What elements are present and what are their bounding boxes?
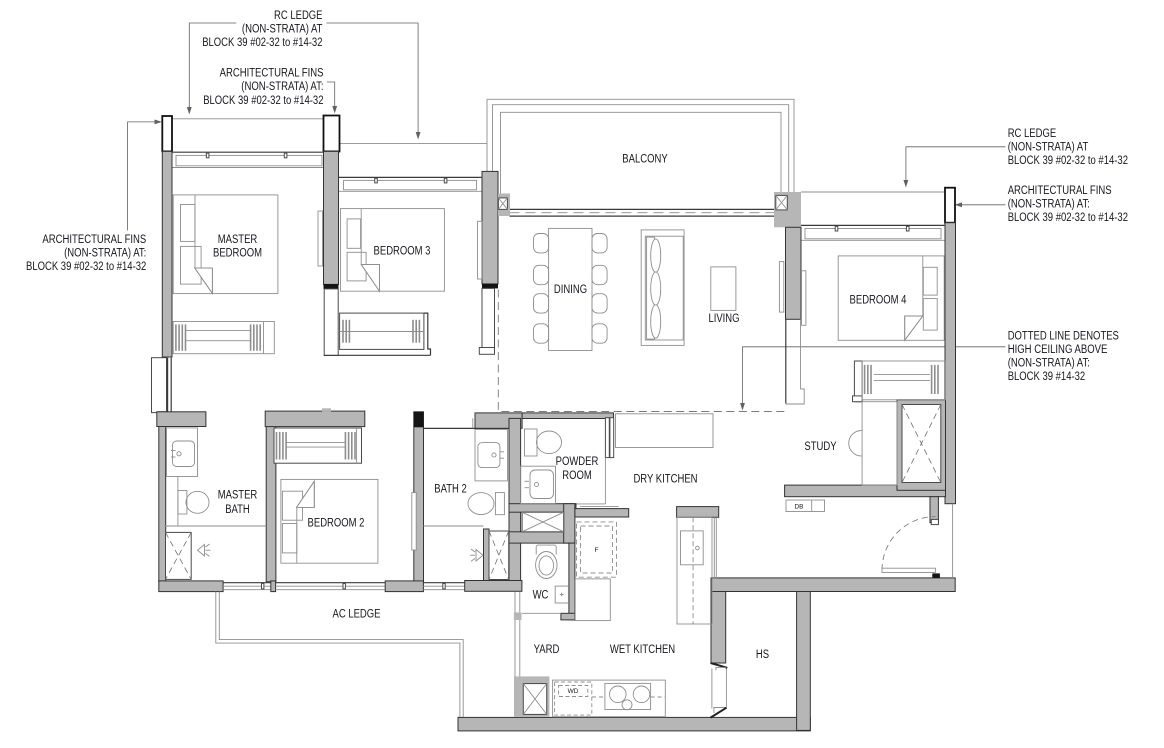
svg-text:BALCONY: BALCONY [622,153,668,165]
svg-text:DINING: DINING [554,284,587,296]
svg-text:ARCHITECTURAL FINS: ARCHITECTURAL FINS [42,234,146,246]
svg-text:WD: WD [568,688,579,695]
svg-text:DB: DB [794,504,803,511]
svg-text:(NON-STRATA) AT: (NON-STRATA) AT [1008,141,1089,153]
svg-text:WET KITCHEN: WET KITCHEN [610,644,675,656]
svg-text:STUDY: STUDY [804,441,836,453]
svg-text:F: F [595,547,599,554]
svg-text:BLOCK 39 #02-32 to #14-32: BLOCK 39 #02-32 to #14-32 [26,261,146,273]
svg-text:ROOM: ROOM [562,470,592,482]
svg-text:LIVING: LIVING [708,313,739,325]
svg-text:POWDER: POWDER [556,456,599,468]
svg-text:BLOCK 39 #02-32 to #14-32: BLOCK 39 #02-32 to #14-32 [1008,212,1128,224]
svg-text:BATH 2: BATH 2 [434,483,467,495]
svg-text:BEDROOM: BEDROOM [213,247,262,259]
svg-text:(NON-STRATA) AT:: (NON-STRATA) AT: [1008,358,1090,370]
svg-text:HIGH CEILING ABOVE: HIGH CEILING ABOVE [1008,344,1108,356]
svg-text:YARD: YARD [534,644,560,656]
svg-text:AC LEDGE: AC LEDGE [333,608,381,620]
svg-text:(NON-STRATA) AT:: (NON-STRATA) AT: [241,81,323,93]
svg-text:(NON-STRATA) AT:: (NON-STRATA) AT: [64,247,146,259]
svg-text:RC LEDGE: RC LEDGE [1008,128,1057,140]
svg-text:(NON-STRATA) AT:: (NON-STRATA) AT: [1008,199,1090,211]
svg-text:MASTER: MASTER [218,234,258,246]
svg-text:BEDROOM 4: BEDROOM 4 [850,294,907,306]
svg-text:BEDROOM 3: BEDROOM 3 [374,245,431,257]
svg-text:BLOCK 39 #02-32 to #14-32: BLOCK 39 #02-32 to #14-32 [203,95,323,107]
svg-text:BLOCK 39 #02-32 to #14-32: BLOCK 39 #02-32 to #14-32 [202,37,322,49]
svg-text:BEDROOM 2: BEDROOM 2 [308,517,365,529]
svg-text:DOTTED LINE DENOTES: DOTTED LINE DENOTES [1008,330,1119,342]
svg-text:RC LEDGE: RC LEDGE [274,10,323,22]
svg-text:BLOCK 39 #14-32: BLOCK 39 #14-32 [1008,371,1085,383]
svg-text:ARCHITECTURAL FINS: ARCHITECTURAL FINS [220,68,324,80]
svg-text:WC: WC [533,589,549,601]
svg-text:DRY KITCHEN: DRY KITCHEN [633,473,697,485]
svg-text:MASTER: MASTER [218,489,258,501]
svg-text:ARCHITECTURAL FINS: ARCHITECTURAL FINS [1008,185,1112,197]
svg-text:BLOCK 39 #02-32 to #14-32: BLOCK 39 #02-32 to #14-32 [1008,155,1128,167]
svg-text:(NON-STRATA) AT: (NON-STRATA) AT [242,24,323,36]
svg-text:BATH: BATH [225,504,250,516]
svg-text:HS: HS [756,649,769,661]
